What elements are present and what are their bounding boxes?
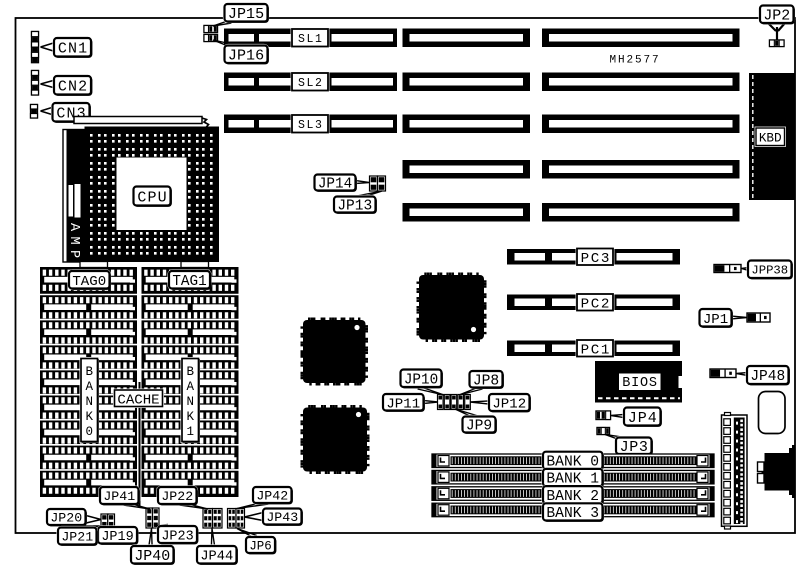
svg-text:TAG0: TAG0 — [72, 274, 106, 290]
svg-text:BANK 3: BANK 3 — [546, 506, 599, 522]
svg-text:JP8: JP8 — [473, 373, 499, 389]
svg-text:1: 1 — [186, 425, 194, 439]
svg-text:JP20: JP20 — [50, 511, 82, 526]
svg-text:CPU: CPU — [137, 189, 167, 206]
svg-text:JP19: JP19 — [101, 530, 133, 545]
svg-text:JP48: JP48 — [750, 369, 785, 385]
svg-text:JP4: JP4 — [628, 410, 658, 427]
svg-text:PC2: PC2 — [581, 296, 611, 312]
svg-text:JP15: JP15 — [228, 6, 264, 23]
svg-text:SL2: SL2 — [298, 77, 324, 90]
svg-text:JP44: JP44 — [200, 550, 233, 565]
svg-text:JP23: JP23 — [161, 529, 193, 544]
svg-text:0: 0 — [85, 425, 93, 439]
svg-text:K: K — [85, 410, 93, 424]
svg-text:MH2577: MH2577 — [609, 55, 660, 67]
svg-text:KBD: KBD — [759, 130, 782, 145]
svg-text:A: A — [85, 380, 93, 394]
svg-text:M: M — [66, 236, 81, 244]
svg-text:B: B — [85, 365, 93, 379]
svg-text:JP9: JP9 — [466, 419, 492, 435]
svg-text:B: B — [186, 365, 194, 379]
svg-text:N: N — [186, 395, 194, 409]
svg-text:JP1: JP1 — [703, 312, 728, 328]
svg-text:JP6: JP6 — [249, 539, 271, 553]
svg-text:CN1: CN1 — [58, 41, 88, 58]
svg-text:JP21: JP21 — [61, 530, 93, 545]
svg-text:JP2: JP2 — [763, 9, 790, 25]
svg-text:BIOS: BIOS — [622, 376, 658, 391]
svg-text:TAG1: TAG1 — [172, 274, 206, 290]
svg-text:JP40: JP40 — [134, 549, 170, 565]
svg-text:JP10: JP10 — [404, 372, 438, 388]
svg-text:JP14: JP14 — [318, 177, 352, 193]
svg-text:CN2: CN2 — [58, 79, 88, 96]
svg-text:PC3: PC3 — [581, 251, 611, 267]
svg-text:JPP38: JPP38 — [751, 264, 788, 278]
svg-text:JP22: JP22 — [161, 489, 193, 504]
svg-text:JP11: JP11 — [386, 396, 420, 412]
svg-text:PC1: PC1 — [581, 342, 611, 358]
svg-text:CACHE: CACHE — [117, 392, 159, 408]
svg-text:JP13: JP13 — [337, 199, 372, 215]
svg-text:A: A — [66, 223, 81, 232]
svg-text:JP12: JP12 — [492, 397, 526, 413]
svg-text:K: K — [186, 410, 194, 424]
svg-text:JP16: JP16 — [228, 48, 264, 65]
svg-text:N: N — [85, 395, 93, 409]
svg-text:SL3: SL3 — [298, 119, 324, 132]
svg-text:P: P — [66, 250, 81, 258]
svg-text:JP43: JP43 — [266, 510, 298, 525]
svg-text:JP41: JP41 — [103, 489, 135, 504]
svg-text:SL1: SL1 — [298, 33, 324, 46]
svg-text:JP42: JP42 — [256, 489, 288, 504]
svg-text:A: A — [186, 380, 194, 394]
